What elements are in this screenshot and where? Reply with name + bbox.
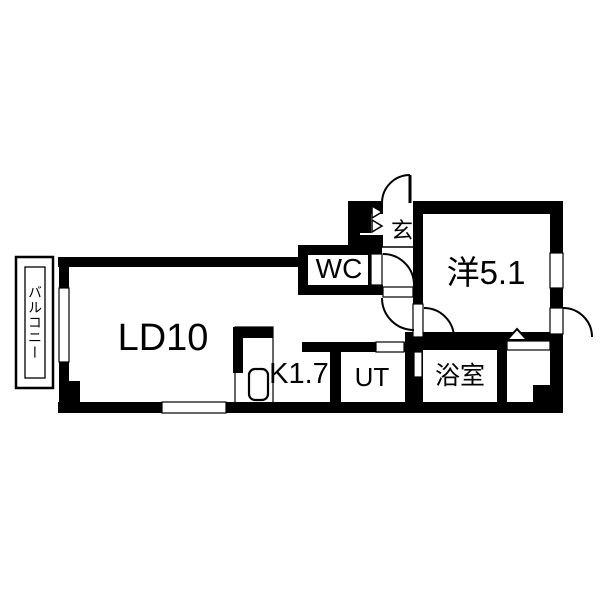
balcony-label: バルコニー [24, 266, 46, 379]
kitchen-label: K1.7 [264, 359, 334, 389]
utility-label: UT [342, 363, 402, 391]
wall-right-upper [550, 201, 563, 253]
western-room-label: 洋5.1 [426, 254, 546, 290]
window-ld-bottom [162, 402, 226, 413]
wall-western-left-upper [413, 201, 423, 304]
shoe-closet-panel-lower [360, 219, 371, 233]
entrance-label: 玄 [385, 218, 419, 243]
door-gap-right-exterior [550, 308, 563, 334]
wall-right-mid [550, 288, 563, 308]
door-arc-right-exterior [563, 308, 592, 337]
window-western-right [550, 253, 563, 288]
wall-top-right-block [413, 201, 563, 214]
wall-bottom [58, 402, 563, 413]
bathroom-label: 浴室 [420, 362, 500, 390]
door-gap-western-room [413, 304, 423, 337]
door-arc-entrance [382, 175, 410, 203]
kitchen-counter-left-edge [233, 327, 243, 373]
wall-ld-left-upper [59, 257, 69, 288]
window-ld-balcony [59, 288, 69, 362]
slider-hall-kitchen [383, 287, 413, 297]
wall-bath-top [420, 340, 507, 350]
shoe-closet-bifold-lower [372, 220, 382, 232]
opening-closet [507, 341, 550, 350]
toilet-label: WC [304, 255, 374, 283]
wall-ld-top [58, 257, 298, 267]
door-arc-wc [383, 254, 414, 285]
floor-plan-drawing [0, 0, 600, 600]
floor-plan: バルコニー LD10 WC 玄 洋5.1 K1.7 UT 浴室 [0, 0, 600, 600]
wall-entrance-nook-bottom [348, 235, 383, 247]
door-arc-hall [382, 298, 414, 330]
door-gap-utility [376, 342, 404, 352]
shoe-closet-panel-upper [360, 205, 371, 219]
living-dining-label: LD10 [103, 317, 223, 359]
wall-corner-block-sw [59, 381, 80, 403]
wall-closet-block [533, 385, 563, 403]
